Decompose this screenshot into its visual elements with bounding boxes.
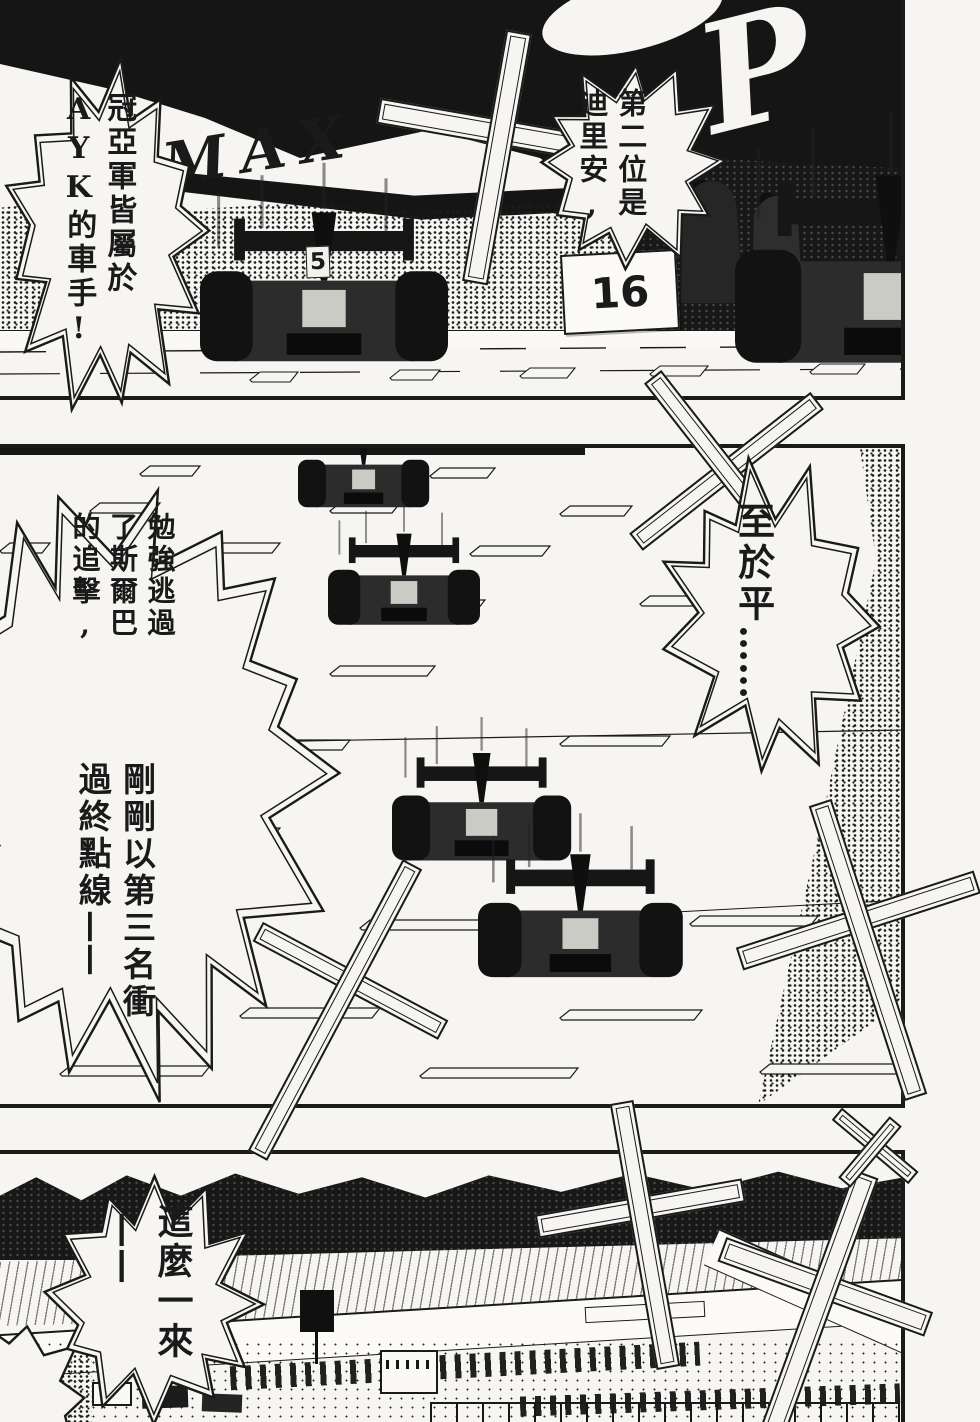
bubble-text-p1-right: 第二位是 迪里安,	[572, 88, 650, 263]
text-col: 第二位是	[611, 88, 650, 263]
text-col: 剛剛以第三名衝	[114, 762, 158, 1082]
text-col: 冠亞軍皆屬於	[98, 92, 138, 422]
text-col: AYK的車手!	[58, 92, 98, 422]
cross-bar-v	[462, 30, 532, 286]
cross-bar-v	[610, 1100, 681, 1370]
bubble-text-p3: 這麼一來 ——	[100, 1202, 196, 1402]
bubble-text-p2-left-top: 勉強逃過 了斯爾巴 的追擊,	[66, 512, 179, 732]
manga-page: P MAX	[0, 0, 980, 1422]
text-col: 了斯爾巴	[104, 512, 142, 732]
car-number-plate: 5	[305, 246, 330, 279]
text-col: 的追擊,	[66, 512, 104, 732]
signboard-pole	[315, 1332, 318, 1364]
text-col: 這麼一來	[148, 1202, 196, 1402]
text-col: 至於平……	[728, 502, 778, 762]
pit-building-windows	[386, 1360, 434, 1369]
bubble-text-p2-right: 至於平……	[728, 502, 778, 762]
bubble-text-p1-left: 冠亞軍皆屬於 AYK的車手!	[58, 92, 138, 422]
cross-bar-v	[809, 799, 928, 1101]
car-number-text: 5	[310, 249, 327, 276]
race-car-far	[298, 448, 429, 507]
pit-building	[380, 1350, 438, 1394]
text-col: 過終點線——	[70, 762, 114, 1082]
text-segment: 過終點線	[73, 762, 112, 910]
text-segment: 至於平	[732, 502, 776, 625]
vertical-ellipsis: ……	[732, 625, 776, 699]
bubble-text-p2-left-bottom: 剛剛以第三名衝 過終點線——	[70, 762, 158, 1082]
text-col: 勉強逃過	[141, 512, 179, 732]
race-car-mid	[328, 503, 480, 625]
long-dash: ——	[73, 910, 112, 976]
signboard	[300, 1290, 334, 1332]
text-col: 迪里安,	[572, 88, 611, 263]
long-dash: ——	[100, 1212, 148, 1402]
